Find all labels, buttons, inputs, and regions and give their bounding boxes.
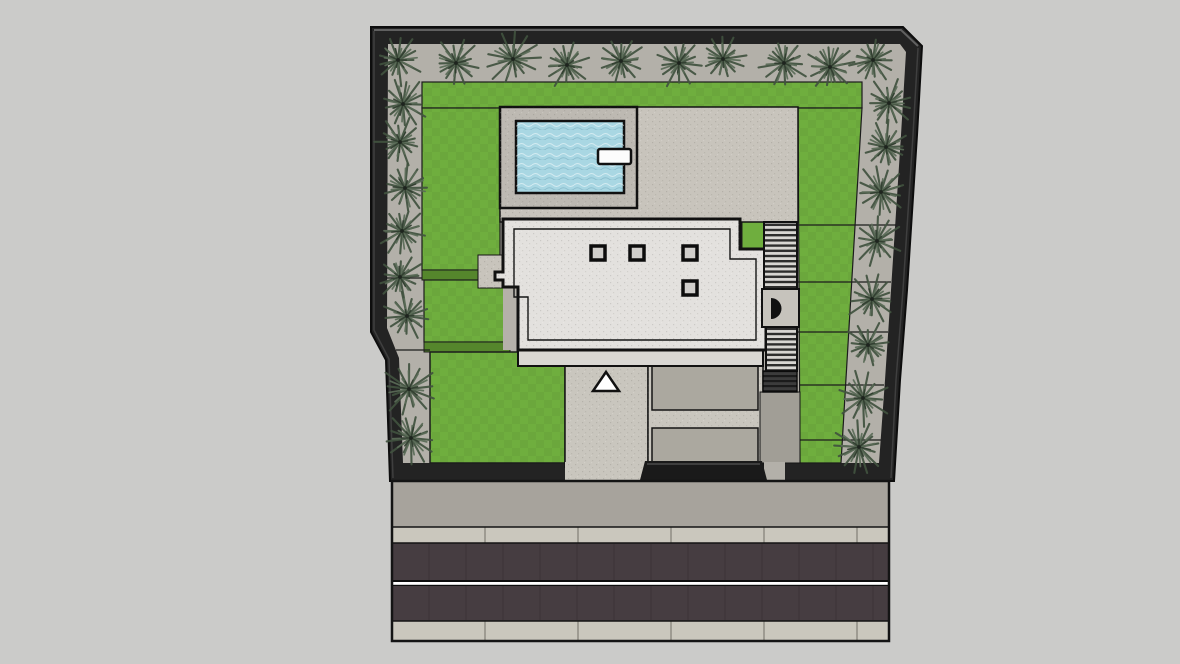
site-plan-canvas[interactable] <box>0 0 1180 664</box>
front-walkway-texture <box>565 352 648 467</box>
centerline <box>392 582 889 585</box>
east-apron <box>760 392 800 463</box>
diving-board <box>598 149 631 164</box>
road-verge <box>392 481 889 527</box>
parking-pad-lower <box>652 428 758 462</box>
layer-street <box>392 481 889 641</box>
lawn-bottom-left-texture <box>430 352 565 463</box>
sidewalk-north <box>392 527 889 543</box>
parking-pad-upper <box>652 366 758 410</box>
lawn-stair-strip <box>742 220 766 249</box>
main-roof-texture <box>495 219 766 350</box>
lawn-slope-lower <box>424 342 510 352</box>
stairs-upper-texture <box>764 222 797 289</box>
stairs-lower-texture <box>766 327 797 371</box>
model-viewport[interactable] <box>0 0 1180 664</box>
stairs-ramp-texture <box>763 371 797 392</box>
layer-building <box>495 219 766 366</box>
lawn-left-mid-texture <box>424 280 506 342</box>
skylight-3 <box>683 246 697 260</box>
sidewalk-south <box>392 621 889 641</box>
east-gate-gap <box>764 462 785 481</box>
skylight-2 <box>630 246 644 260</box>
skylight-1 <box>591 246 605 260</box>
layer-wall-gaps <box>565 461 785 481</box>
layer-pool-patio <box>500 107 798 222</box>
lawn-left-upper-texture <box>422 108 500 270</box>
layer-stairs <box>762 222 799 392</box>
skylight-4 <box>683 281 697 295</box>
lawn-top-band-texture <box>422 82 862 108</box>
site-plan-layers <box>371 27 922 641</box>
walkway-gate-gap-texture <box>565 462 645 481</box>
